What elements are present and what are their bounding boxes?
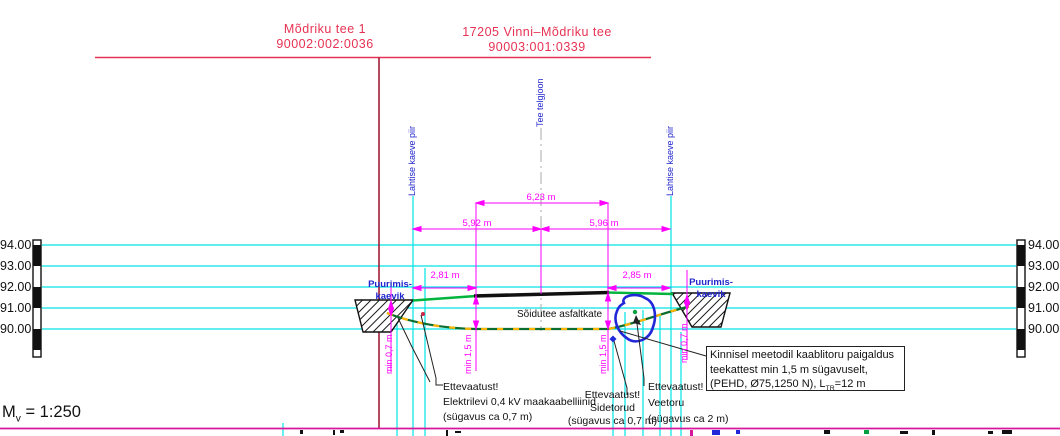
- telecom-duct-symbol: [609, 335, 616, 342]
- road-title-line2: 90003:001:0339: [437, 40, 637, 55]
- left-drill-pit-hatch: [355, 300, 413, 332]
- drill-pit-label-right: Puurimis- kaevik: [683, 277, 739, 301]
- drill-pit-label-right-line2: kaevik: [683, 289, 739, 301]
- callout-water-line2: Veetoru: [648, 395, 729, 411]
- road-title: 17205 Vinni–Mõdriku tee 90003:001:0339: [437, 25, 637, 55]
- note-box-line3: (PEHD, Ø75,1250 N), LTR=12 m: [710, 377, 901, 397]
- cross-section-panel: Mõdriku tee 1 90002:002:0036 17205 Vinni…: [0, 0, 1060, 436]
- dim-total-label: 6,23 m: [511, 192, 571, 203]
- road-edge-line-left: [413, 296, 476, 301]
- road-centerline-label: Tee telgjoon: [535, 78, 545, 127]
- callout-water-line3: (sügavus ca 2 m): [648, 411, 729, 427]
- left-elevation-staff: [33, 240, 41, 357]
- property-title: Mõdriku tee 1 90002:002:0036: [245, 22, 405, 52]
- road-title-line1: 17205 Vinni–Mõdriku tee: [437, 25, 637, 40]
- elevation-label-left-92: 92.00: [0, 280, 30, 294]
- note-box: Kinnisel meetodil kaablitoru paigaldus t…: [706, 346, 905, 391]
- min-cover-label-right: min 1,5 m: [598, 334, 608, 374]
- dim-right-edge-label: 2,85 m: [607, 270, 667, 281]
- drill-pit-label-left-line2: kaevik: [362, 291, 418, 303]
- dimension-lines: [389, 201, 690, 373]
- note-box-line2: teekattest min 1,5 m sügavuselt,: [710, 363, 901, 378]
- elevation-label-left-93: 93.00: [0, 259, 30, 273]
- min-depth-label-left: min 0,7 m: [384, 334, 394, 374]
- drill-pit-label-left-line1: Puurimis-: [362, 279, 418, 291]
- bottom-cutoff-marks: [300, 430, 1012, 436]
- road-edge-line-right: [607, 293, 673, 295]
- drill-pit-label-left: Puurimis- kaevik: [362, 279, 418, 303]
- elevation-label-right-90: 90.00: [1028, 322, 1058, 336]
- excavation-boundary-label-left: Lahtise kaeve piir: [407, 126, 417, 196]
- elevation-label-right-91: 91.00: [1028, 301, 1058, 315]
- dim-left-edge-label: 2,81 m: [415, 270, 475, 281]
- min-cover-label-left: min 1,5 m: [463, 334, 473, 374]
- right-elevation-staff: [1017, 240, 1025, 357]
- elevation-label-left-94: 94.00: [0, 238, 30, 252]
- note-box-line1: Kinnisel meetodil kaablitoru paigaldus: [710, 348, 901, 363]
- dim-right-half-label: 5,96 m: [574, 218, 634, 229]
- asphalt-label: Sõidutee asfaltkate: [517, 309, 602, 320]
- property-title-line2: 90002:002:0036: [245, 37, 405, 52]
- elevation-label-right-92: 92.00: [1028, 280, 1058, 294]
- elevation-label-right-93: 93.00: [1028, 259, 1058, 273]
- property-title-line1: Mõdriku tee 1: [245, 22, 405, 37]
- drill-pit-label-right-line1: Puurimis-: [683, 277, 739, 289]
- elevation-label-left-90: 90.00: [0, 322, 30, 336]
- scale-label: Mv = 1:250: [2, 403, 81, 424]
- dim-left-half-label: 5,92 m: [447, 218, 507, 229]
- min-depth-label-right: min 0,7 m: [679, 323, 689, 363]
- water-pipe-point: [633, 310, 637, 314]
- excavation-boundary-label-right: Lahtise kaeve piir: [665, 126, 675, 196]
- elevation-label-left-91: 91.00: [0, 301, 30, 315]
- elevation-label-right-94: 94.00: [1028, 238, 1058, 252]
